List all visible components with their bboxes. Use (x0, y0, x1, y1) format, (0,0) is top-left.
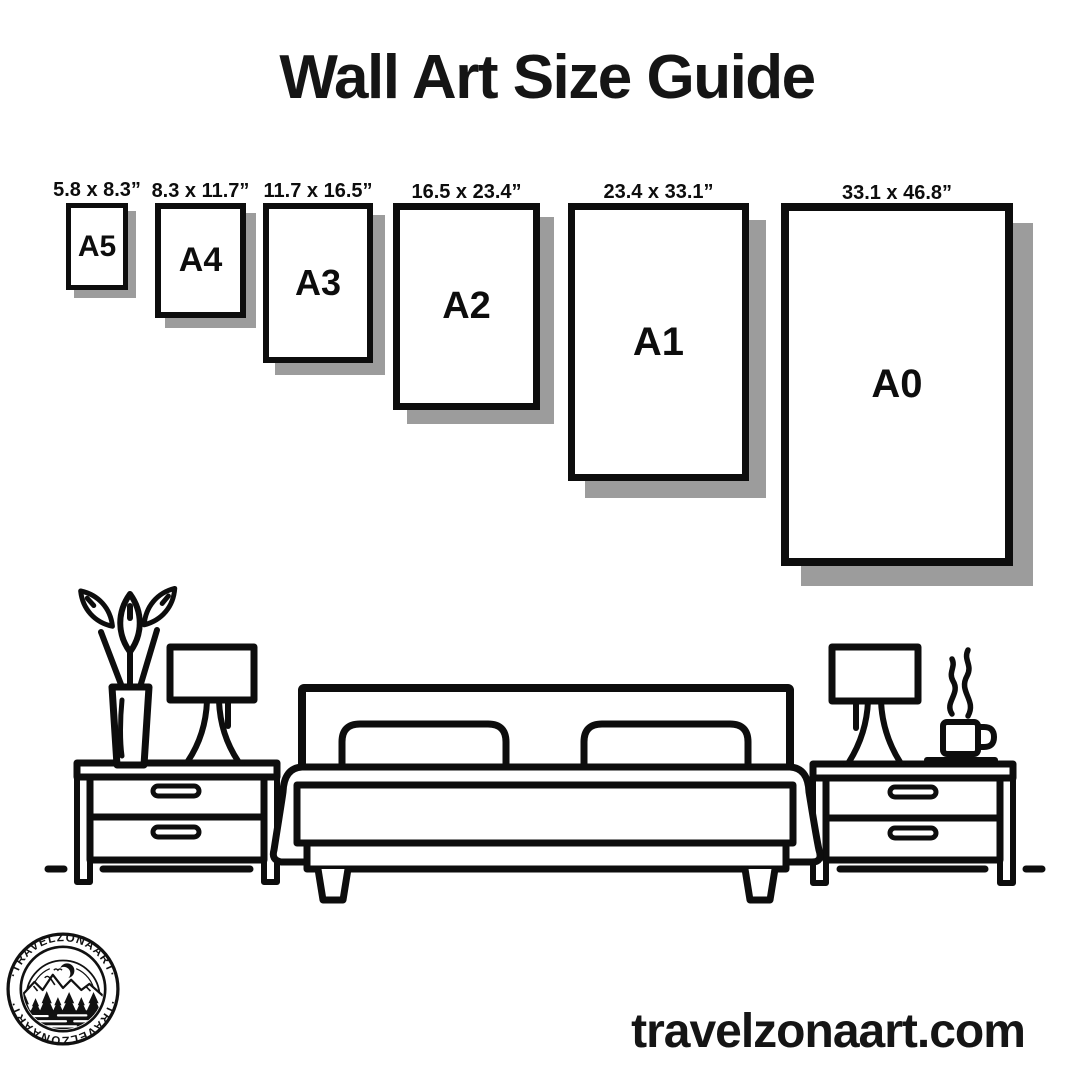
frame-a1: 23.4 x 33.1” A1 (568, 203, 749, 481)
frame-a5-label: A5 (78, 230, 116, 264)
pillow-left (342, 724, 506, 768)
potted-plant (75, 583, 181, 765)
duvet (297, 785, 793, 843)
website-url: travelzonaart.com (631, 1004, 1025, 1059)
page-title: Wall Art Size Guide (279, 42, 814, 113)
frame-a4-label: A4 (179, 241, 222, 280)
table-lamp-left (170, 647, 254, 763)
steam-lines (950, 650, 971, 716)
frame-a4-dimensions: 8.3 x 11.7” (152, 180, 250, 203)
frame-a2-label: A2 (442, 285, 491, 328)
frame-a3: 11.7 x 16.5” A3 (263, 203, 373, 363)
bedroom-scene-illustration (30, 580, 1050, 905)
bed-leg-right (745, 869, 775, 900)
frame-a2-dimensions: 16.5 x 23.4” (411, 181, 521, 204)
pillow-right (584, 724, 748, 768)
nightstand-right (813, 764, 1013, 883)
frame-a4: 8.3 x 11.7” A4 (155, 203, 246, 318)
frame-a2: 16.5 x 23.4” A2 (393, 203, 540, 410)
frame-a5: 5.8 x 8.3” A5 (66, 203, 128, 290)
frame-a3-label: A3 (295, 262, 341, 304)
frame-a0-label: A0 (871, 362, 922, 407)
bed-base (307, 843, 786, 869)
frame-a5-dimensions: 5.8 x 8.3” (53, 179, 141, 202)
bed-leg-left (318, 869, 348, 900)
nightstand-left (77, 763, 277, 882)
frame-a3-dimensions: 11.7 x 16.5” (264, 180, 373, 203)
table-lamp-right (832, 647, 918, 764)
frame-a1-label: A1 (633, 320, 684, 365)
double-bed (273, 688, 820, 900)
frame-a0: 33.1 x 46.8” A0 (781, 203, 1013, 566)
coffee-cup (927, 722, 995, 760)
frame-a1-dimensions: 23.4 x 33.1” (603, 181, 713, 204)
brand-badge-logo: ·TRAVELZONAART· ·TRAVELZONAART· (4, 930, 122, 1048)
wall-art-size-guide-poster: Wall Art Size Guide 5.8 x 8.3” A5 8.3 x … (0, 0, 1080, 1080)
frame-a0-dimensions: 33.1 x 46.8” (842, 182, 952, 205)
